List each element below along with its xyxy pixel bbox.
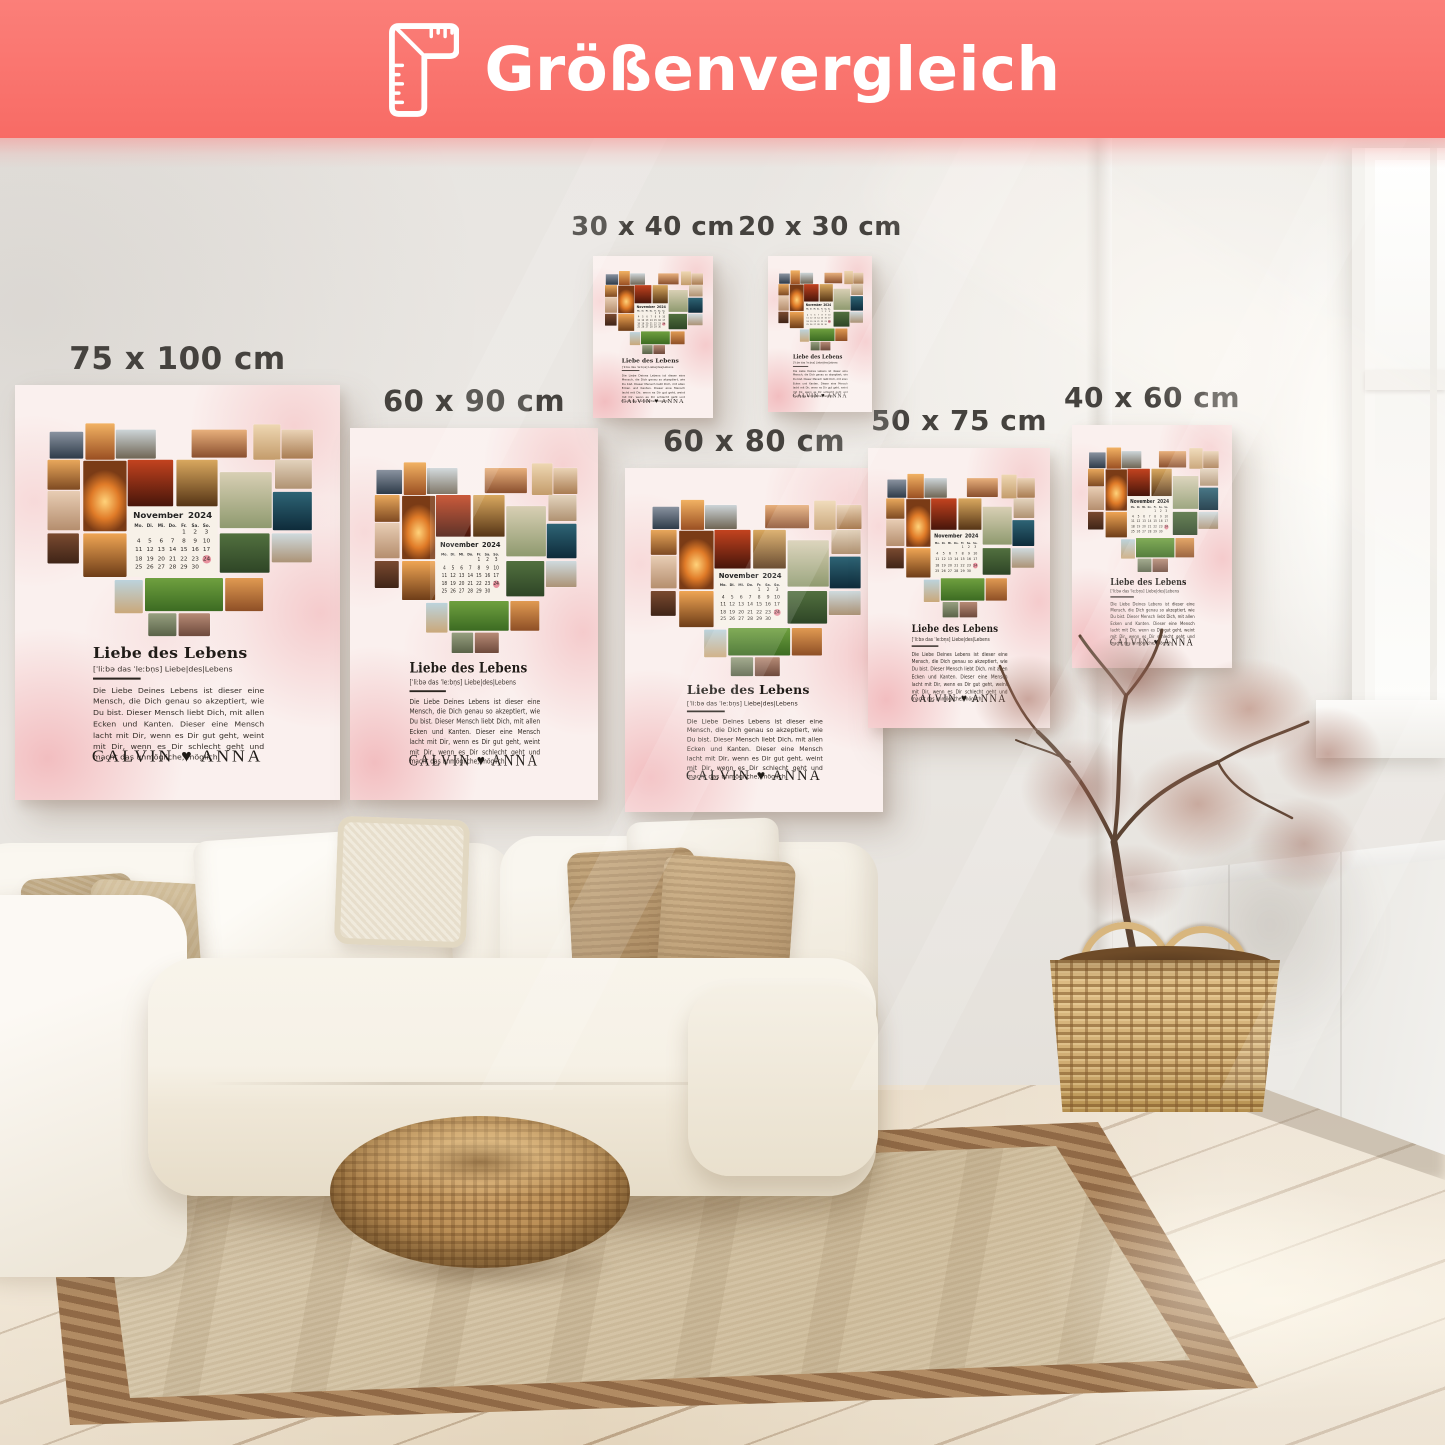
calendar-day: 6 [156,537,167,546]
sunset-chairs-photo [790,284,804,311]
warm-couple-photo [967,478,998,497]
poster-size-label: 60 x 90 cm [383,384,565,418]
sunset-person-photo [1107,447,1121,468]
lying-person-photo [1088,487,1104,510]
calendar-day: 11 [133,546,144,555]
picnic-food-photo [778,312,788,323]
calendar-day: 14 [466,572,475,580]
calendar-day: 4 [719,594,728,601]
picnic-warm-photo [225,578,263,611]
sunset-person-photo [681,500,704,530]
calendar-day: 2 [190,528,201,537]
poster: 30 x 40 cm November 2024 Mo.Di.Mi.Do.Fr.… [593,256,713,418]
calendar-day: 17 [492,572,501,580]
calendar-header: November 2024 [133,511,212,520]
calendar-day: 21 [746,609,755,616]
poster-calendar: November 2024 Mo.Di.Mi.Do.Fr.Sa.So. 1234… [931,530,981,578]
beach-walk-photo [275,460,312,489]
calendar-day: 12 [144,546,155,555]
calendar-day: 18 [719,609,728,616]
calendar-year: 2024 [762,572,781,580]
calendar-day: 24 [492,580,501,588]
mountain-couple-photo [653,507,680,529]
sand-woman-photo [814,501,836,530]
calendar-empty-cell [719,587,728,594]
poster-canvas: November 2024 Mo.Di.Mi.Do.Fr.Sa.So. 1234… [15,385,340,800]
warm-couple-photo [485,468,527,493]
sunset-person-photo [907,474,923,499]
calendar-day: 15 [178,546,189,555]
calendar-day: 10 [773,594,782,601]
calendar-empty-cell [773,616,782,623]
sunset-field-photo [375,495,400,522]
calendar-day: 12 [449,572,458,580]
calendar-day: 20 [457,580,466,588]
hands-heart-photo [1106,512,1127,538]
poster: 75 x 100 cm November 2024 Mo.Di.Mi.Do.Fr… [15,385,340,800]
warm-couple-photo [765,505,809,528]
calendar-day: 4 [440,564,449,572]
wedding-arch-photo [220,533,270,572]
red-sunset-photo [128,460,174,507]
wedding-arch-photo [788,591,828,624]
calendar-day: 5 [728,594,737,601]
poster-phonetic: [ˈliːbə das ˈleːbn̩s] Liebe|des|Lebens [93,664,264,673]
picnic-food-photo [48,533,79,563]
calendar-day: 8 [755,594,764,601]
sand-woman-photo [1001,475,1016,499]
poster: 60 x 80 cm November 2024 Mo.Di.Mi.Do.Fr.… [625,468,883,812]
beach-couple-photo [553,468,577,494]
poster-couple-names: CALVIN ♥ ANNA [593,397,713,405]
picnic-warm-photo [510,601,539,631]
calendar-day-grid: 1234567891011121314151617181920212223242… [1130,509,1169,535]
calendar-day: 10 [201,537,212,546]
calendar-day: 4 [133,537,144,546]
hands-heart-photo [790,312,804,328]
calendar-day: 9 [483,564,492,572]
dunes-wedding-photo [788,540,829,586]
header-banner: Größenvergleich [0,0,1445,138]
calendar-month: November [133,511,183,520]
ruler-corner-icon [385,21,459,119]
beach-walk-photo [1200,469,1218,486]
calendar-day: 23 [764,609,773,616]
calendar-empty-cell [133,528,144,537]
beach-couple-photo [853,273,863,284]
calendar-day: 1 [178,528,189,537]
calendar-day: 19 [728,609,737,616]
calendar-header: November 2024 [637,305,666,309]
calendar-day: 18 [133,555,144,564]
rock-couple-photo [630,273,645,284]
beach-couple-photo [1203,451,1218,468]
beach-walk-photo [689,285,703,296]
calendar-empty-cell [662,326,666,329]
rock-couple-photo [1122,451,1142,468]
calendar-day: 10 [492,564,501,572]
calendar-day: 18 [440,580,449,588]
poster-divider [410,690,446,691]
poster-calendar: November 2024 Mo.Di.Mi.Do.Fr.Sa.So. 1234… [804,302,833,329]
grass-couple-photo [1136,538,1174,557]
wedding-arch-photo [506,561,544,596]
golden-silhouette-photo [958,498,981,530]
calendar-day: 28 [466,588,475,596]
calendar-day: 21 [466,580,475,588]
teal-sea-photo [1012,520,1034,546]
calendar-empty-cell [827,323,831,326]
calendar-day-grid: 1234567891011121314151617181920212223242… [719,587,782,624]
beach-standing-photo [630,332,640,345]
red-sunset-photo [714,530,750,569]
cream-textured-pillow [334,816,470,949]
calendar-day: 21 [167,555,178,564]
mountain-couple-photo [779,274,790,284]
beach-small-photo [546,561,577,587]
poster-divider [687,711,725,712]
grass-couple-photo [728,628,790,656]
beach-standing-photo [1121,539,1135,558]
red-sunset-photo [1127,469,1149,496]
hands-heart-photo [906,548,930,577]
calendar-day: 25 [133,564,144,573]
beach-walk-photo [1014,498,1035,518]
red-sunset-photo [635,285,652,303]
calendar-day: 3 [201,528,212,537]
calendar-day: 7 [167,537,178,546]
calendar-month: November [440,541,478,549]
calendar-month: November [1130,499,1155,504]
calendar-day: 16 [483,572,492,580]
poster-couple-names: CALVIN ♥ ANNA [15,746,340,767]
calendar-day: 16 [764,601,773,608]
point-left-photo [452,633,473,653]
poster-size-label: 50 x 75 cm [871,404,1047,437]
dunes-wedding-photo [983,507,1012,545]
poster-canvas: November 2024 Mo.Di.Mi.Do.Fr.Sa.So. 1234… [593,256,713,418]
calendar-day: 11 [719,601,728,608]
red-sunset-photo [436,495,471,537]
warm-couple-photo [658,273,678,284]
hands-heart-photo [83,533,126,577]
calendar-day: 6 [737,594,746,601]
poster-divider [93,678,141,680]
picnic-food-photo [605,314,617,326]
poster-canvas: November 2024 Mo.Di.Mi.Do.Fr.Sa.So. 1234… [768,256,872,412]
dunes-wedding-photo [669,290,688,312]
calendar-day: 15 [475,572,484,580]
sunset-chairs-photo [679,531,713,589]
sunset-chairs-photo [1106,469,1127,510]
calendar-day: 5 [449,564,458,572]
sunset-person-photo [791,270,800,284]
calendar-day: 24 [201,555,212,564]
golden-silhouette-photo [473,495,504,537]
calendar-year: 2024 [1157,499,1169,504]
sunset-field-photo [886,498,904,518]
calendar-day: 30 [483,588,492,596]
rock-couple-photo [800,273,813,284]
hug-couple-photo [653,345,665,354]
poster-title: Liebe des Lebens [1110,577,1194,587]
sunset-chairs-photo [402,496,435,559]
poster-calendar: November 2024 Mo.Di.Mi.Do.Fr.Sa.So. 1234… [714,569,785,627]
hug-couple-photo [475,633,499,653]
dunes-wedding-photo [506,506,546,556]
calendar-day: 14 [167,546,178,555]
dunes-wedding-photo [220,472,272,528]
poster-title: Liebe des Lebens [410,661,541,677]
calendar-empty-cell [1164,530,1170,535]
warm-couple-photo [192,430,247,458]
hug-couple-photo [755,657,780,676]
calendar-day: 9 [190,537,201,546]
calendar-year: 2024 [482,541,500,549]
calendar-day-grid: 1234567891011121314151617181920212223242… [806,310,831,327]
lying-person-photo [886,519,904,546]
calendar-day: 8 [475,564,484,572]
calendar-day: 3 [773,587,782,594]
mountain-couple-photo [606,274,618,285]
rock-couple-photo [427,468,458,494]
calendar-day: 17 [773,601,782,608]
calendar-day: 13 [156,546,167,555]
warm-couple-photo [825,273,843,284]
point-left-photo [1138,559,1152,572]
calendar-day: 11 [440,572,449,580]
poster-canvas: November 2024 Mo.Di.Mi.Do.Fr.Sa.So. 1234… [625,468,883,812]
calendar-day: 9 [764,594,773,601]
beach-small-photo [850,312,863,323]
teal-sea-photo [830,557,861,589]
warm-couple-photo [1159,451,1186,467]
sand-woman-photo [1189,448,1202,469]
calendar-day: 17 [201,546,212,555]
calendar-day: 28 [746,616,755,623]
calendar-empty-cell [466,556,475,564]
beach-standing-photo [115,580,143,613]
poster-title: Liebe des Lebens [793,354,848,361]
hands-heart-photo [679,591,713,627]
sunset-person-photo [85,423,114,459]
calendar-day: 23 [483,580,492,588]
mountain-couple-photo [50,432,84,459]
calendar-day: 8 [178,537,189,546]
wedding-arch-photo [669,314,687,329]
poster-calendar: November 2024 Mo.Di.Mi.Do.Fr.Sa.So. 1234… [436,537,505,600]
calendar-empty-cell [440,556,449,564]
window-jamb [1430,148,1437,714]
beach-couple-photo [282,430,313,459]
sunset-chairs-photo [83,461,126,532]
picnic-warm-photo [835,329,847,341]
calendar-day: 3 [492,556,501,564]
picnic-food-photo [886,548,904,568]
lying-person-photo [605,297,617,312]
beach-couple-photo [837,505,862,529]
calendar-day: 26 [728,616,737,623]
beach-small-photo [1012,548,1034,568]
rock-couple-photo [116,430,156,459]
calendar-day: 26 [144,564,155,573]
calendar-day: 13 [737,601,746,608]
calendar-day: 24 [773,609,782,616]
calendar-day-grid: 1234567891011121314151617181920212223242… [934,545,978,575]
hug-couple-photo [820,342,830,351]
calendar-empty-cell [728,587,737,594]
calendar-day: 30 [764,616,773,623]
sunset-field-photo [651,530,677,555]
red-sunset-photo [804,284,819,302]
lying-person-photo [375,523,400,558]
sunset-person-photo [404,462,426,495]
lying-person-photo [651,556,677,589]
picnic-warm-photo [671,331,685,344]
calendar-empty-cell [746,587,755,594]
beach-walk-photo [831,530,860,554]
beach-couple-photo [1017,478,1035,498]
calendar-day: 27 [156,564,167,573]
dunes-wedding-photo [834,289,851,310]
calendar-empty-cell [156,528,167,537]
sand-woman-photo [681,271,691,285]
sunset-chairs-photo [906,499,930,547]
calendar-empty-cell [492,588,501,596]
calendar-day: 22 [178,555,189,564]
calendar-year: 2024 [657,305,666,309]
beach-standing-photo [426,603,447,633]
dried-foliage [1228,778,1380,910]
calendar-day: 20 [737,609,746,616]
dunes-wedding-photo [1173,476,1199,509]
calendar-year: 2024 [188,511,212,520]
picnic-food-photo [375,561,399,588]
calendar-day: 29 [178,564,189,573]
page-title: Größenvergleich [485,34,1061,105]
calendar-day: 22 [475,580,484,588]
sand-woman-photo [844,271,853,284]
point-left-photo [148,613,176,636]
golden-silhouette-photo [1151,469,1171,496]
poster: 20 x 30 cm November 2024 Mo.Di.Mi.Do.Fr.… [768,256,872,412]
calendar-day: 19 [144,555,155,564]
picnic-warm-photo [1175,538,1194,557]
poster-title: Liebe des Lebens [93,644,264,662]
sand-woman-photo [532,463,553,495]
beach-couple-photo [691,273,703,284]
calendar-day: 16 [190,546,201,555]
poster-divider [622,370,640,371]
lying-person-photo [48,491,81,530]
calendar-header: November 2024 [719,572,782,580]
calendar-header: November 2024 [934,533,978,539]
poster-size-label: 40 x 60 cm [1064,381,1240,414]
wicker-pouf [330,1116,630,1268]
picnic-food-photo [651,591,676,616]
poster-phonetic: [ˈliːbə das ˈleːbn̩s] Liebe|des|Lebens [410,678,541,686]
poster-couple-names: CALVIN ♥ ANNA [625,767,883,784]
teal-sea-photo [273,492,312,530]
hands-heart-photo [402,561,435,600]
picnic-warm-photo [792,628,822,656]
sunset-field-photo [778,284,788,295]
calendar-empty-cell [457,556,466,564]
calendar-day: 30 [190,564,201,573]
calendar-day: 25 [440,588,449,596]
golden-silhouette-photo [753,530,786,569]
calendar-day: 25 [719,616,728,623]
calendar-day: 23 [190,555,201,564]
calendar-header: November 2024 [1130,499,1169,504]
calendar-month: November [806,303,822,307]
mountain-couple-photo [1089,452,1106,468]
poster-calendar: November 2024 Mo.Di.Mi.Do.Fr.Sa.So. 1234… [1127,496,1171,537]
hug-couple-photo [179,613,210,636]
wicker-plant-basket [1040,960,1290,1112]
calendar-header: November 2024 [440,541,500,549]
sofa-chaise-seat [688,986,878,1176]
size-comparison-product-image: 75 x 100 cm November 2024 Mo.Di.Mi.Do.Fr… [0,0,1445,1445]
poster-divider [793,366,808,367]
point-left-photo [642,345,652,354]
poster-couple-names: CALVIN ♥ ANNA [350,752,598,771]
calendar-month: November [637,305,656,309]
calendar-empty-cell [144,528,155,537]
beach-small-photo [272,533,312,562]
calendar-day: 27 [457,588,466,596]
calendar-day: 27 [737,616,746,623]
calendar-day: 29 [755,616,764,623]
beach-small-photo [1198,512,1218,529]
poster: 60 x 90 cm November 2024 Mo.Di.Mi.Do.Fr.… [350,428,598,800]
mountain-couple-photo [887,480,906,498]
sand-woman-photo [253,424,280,459]
calendar-day: 1 [475,556,484,564]
sunset-chairs-photo [618,286,634,314]
beach-standing-photo [800,329,809,341]
poster-title: Liebe des Lebens [687,683,823,698]
poster-size-label: 30 x 40 cm [571,212,735,242]
calendar-day: 20 [156,555,167,564]
poster-phonetic: [ˈliːbə das ˈleːbn̩s] Liebe|des|Lebens [793,361,848,365]
calendar-day: 2 [483,556,492,564]
teal-sea-photo [688,298,702,313]
calendar-empty-cell [449,556,458,564]
calendar-day: 13 [457,572,466,580]
rock-couple-photo [924,478,946,498]
calendar-header: November 2024 [806,303,831,307]
calendar-day: 29 [475,588,484,596]
calendar-day: 2 [764,587,773,594]
calendar-day: 12 [728,601,737,608]
poster-couple-names: CALVIN ♥ ANNA [768,392,872,400]
calendar-year: 2024 [965,533,979,539]
calendar-month: November [934,533,962,539]
poster-size-label: 75 x 100 cm [69,341,285,377]
wedding-arch-photo [834,312,850,327]
calendar-day: 19 [449,580,458,588]
poster-size-label: 20 x 30 cm [738,212,902,242]
calendar-day: 7 [466,564,475,572]
beach-small-photo [829,591,861,615]
calendar-day: 26 [449,588,458,596]
calendar-day: 5 [144,537,155,546]
point-left-photo [811,342,820,351]
picnic-food-photo [1088,512,1103,530]
teal-sea-photo [1199,488,1218,510]
calendar-day: 6 [457,564,466,572]
